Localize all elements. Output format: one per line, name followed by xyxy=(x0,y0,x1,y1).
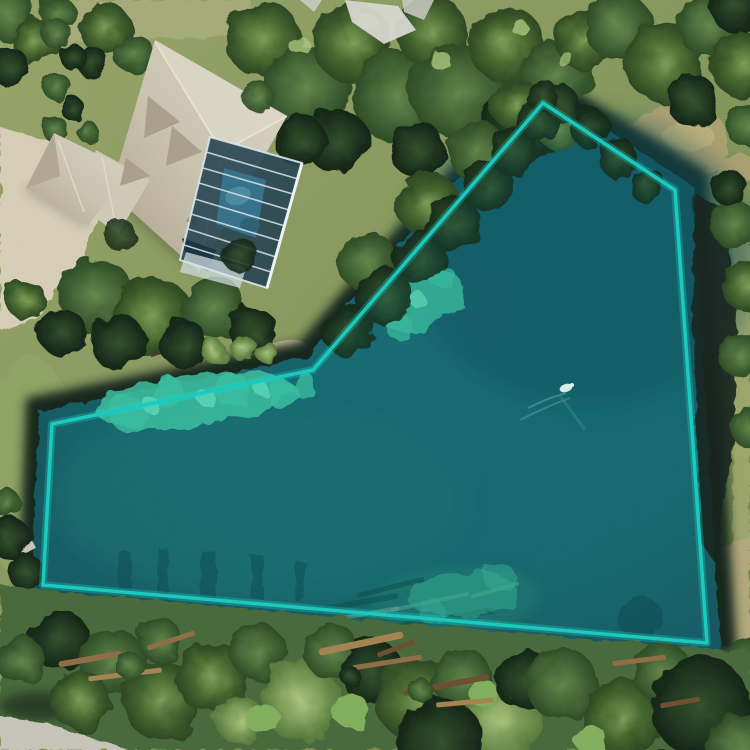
aerial-map-canvas xyxy=(0,0,750,750)
